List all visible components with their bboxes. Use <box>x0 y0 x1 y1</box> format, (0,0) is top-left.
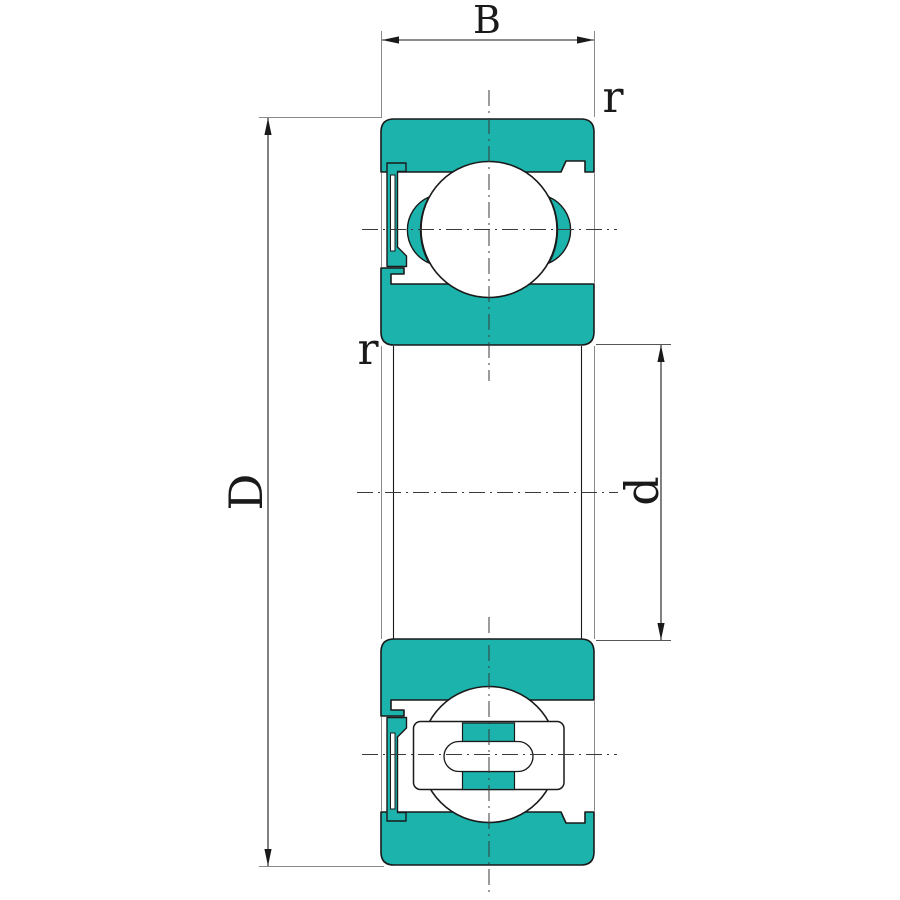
dimension-B: B <box>382 0 595 117</box>
arrow-down <box>264 849 271 866</box>
label-r-outer: r <box>602 72 624 123</box>
label-d: d <box>615 476 669 505</box>
bearing-cross-section-diagram: B D d r r <box>0 0 900 900</box>
arrow-up <box>657 345 664 362</box>
dimension-d: d <box>596 345 671 641</box>
label-B: B <box>473 0 501 42</box>
bearing-dimension-drawing: B D d r r <box>0 0 900 900</box>
arrow-down <box>657 623 664 640</box>
arrow-right <box>577 36 594 43</box>
label-r-inner: r <box>357 324 379 375</box>
label-D: D <box>219 474 273 511</box>
arrow-up <box>264 118 271 135</box>
arrow-left <box>382 36 399 43</box>
